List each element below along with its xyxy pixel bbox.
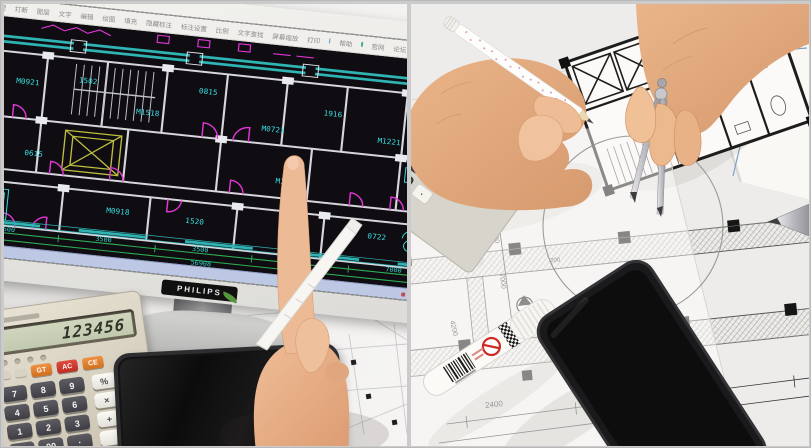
key-2: 2 bbox=[35, 418, 62, 436]
menu-item: 打印 bbox=[307, 34, 321, 45]
calculator-tiny-key bbox=[4, 371, 11, 380]
philips-monitor: 整理 打断 图层 文字 编辑 绘图 填充 隐藏标注 标注设置 比例 文字查找 屏… bbox=[4, 4, 407, 328]
smartphone bbox=[113, 342, 345, 446]
smartphone-screen bbox=[119, 348, 339, 446]
menu-item: 帮助 bbox=[339, 37, 353, 48]
key-5: 5 bbox=[32, 399, 59, 417]
palm bbox=[411, 58, 592, 210]
cad-dim-label: 3500 bbox=[4, 225, 15, 234]
key-6: 6 bbox=[61, 395, 88, 413]
key-4: 4 bbox=[4, 403, 31, 421]
right-photo-blueprint-desk: 9000 30700 2400 200 2000 7000 4200 bbox=[411, 4, 809, 446]
key-9: 9 bbox=[59, 376, 86, 394]
menu-forum-icon bbox=[361, 42, 363, 47]
photo-collage: 整理 打断 图层 文字 编辑 绘图 填充 隐藏标注 标注设置 比例 文字查找 屏… bbox=[0, 0, 811, 448]
key-1: 1 bbox=[6, 422, 33, 440]
blueprint-scene: 9000 30700 2400 200 2000 7000 4200 bbox=[411, 4, 809, 446]
menu-item: 官网 bbox=[371, 40, 385, 51]
cad-floor-plan: M0921 1502 M1518 0815 M0721 1916 M1221 0… bbox=[4, 14, 407, 292]
key-7: 7 bbox=[4, 384, 28, 402]
cmd-icon bbox=[401, 292, 405, 296]
cad-canvas: M0921 1502 M1518 0815 M0721 1916 M1221 0… bbox=[4, 14, 407, 292]
key-8: 8 bbox=[30, 380, 57, 398]
left-photo-cad-monitor: 整理 打断 图层 文字 编辑 绘图 填充 隐藏标注 标注设置 比例 文字查找 屏… bbox=[4, 4, 407, 446]
key-dot: · bbox=[66, 433, 93, 446]
ce-key: CE bbox=[82, 355, 104, 370]
menu-item: 整理 bbox=[4, 4, 7, 12]
menu-item: 论坛 bbox=[393, 43, 407, 54]
menu-item: 屏幕缩放 bbox=[272, 30, 299, 43]
menu-item: 隐藏标注 bbox=[146, 17, 173, 30]
ac-key: AC bbox=[56, 359, 78, 374]
brand-label: PHILIPS bbox=[177, 284, 223, 298]
menu-item: 文字查找 bbox=[237, 26, 264, 39]
menu-item: 绘图 bbox=[102, 12, 116, 23]
key-00: 00 bbox=[38, 437, 65, 446]
menu-item: 编辑 bbox=[80, 10, 94, 21]
monitor-screen: 整理 打断 图层 文字 编辑 绘图 填充 隐藏标注 标注设置 比例 文字查找 屏… bbox=[4, 4, 407, 305]
menu-item: 填充 bbox=[124, 14, 138, 25]
key-3: 3 bbox=[64, 414, 91, 432]
menu-item: 打断 bbox=[14, 4, 28, 14]
calculator-display-value: 123456 bbox=[62, 314, 126, 342]
calculator-tiny-key bbox=[15, 368, 27, 377]
gt-key: GT bbox=[30, 363, 52, 378]
menu-item: 图层 bbox=[36, 5, 50, 16]
menu-globe-icon bbox=[329, 38, 331, 43]
menu-item: 比例 bbox=[215, 24, 229, 35]
menu-item: 标注设置 bbox=[181, 20, 208, 33]
key-0: 0 bbox=[9, 441, 36, 446]
menu-item: 文字 bbox=[58, 8, 72, 19]
